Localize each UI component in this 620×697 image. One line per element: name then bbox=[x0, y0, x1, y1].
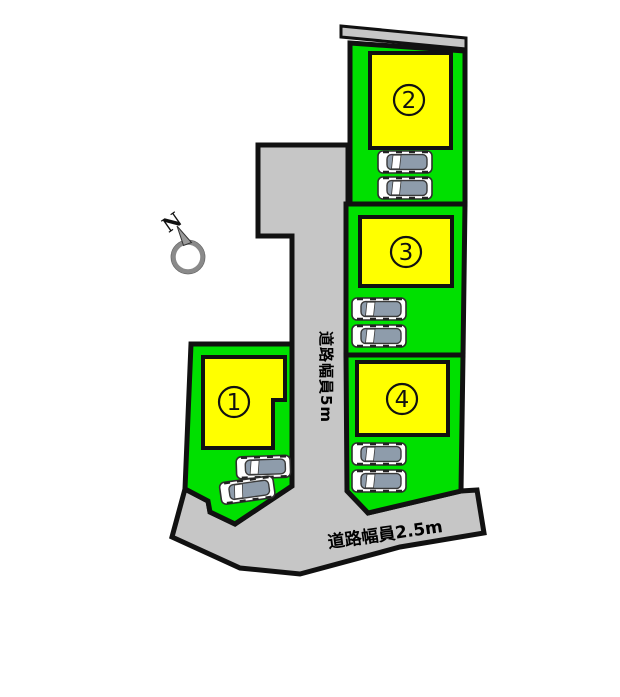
plot-label-3-text: 3 bbox=[399, 240, 414, 266]
car-icon bbox=[352, 443, 406, 465]
car-icon bbox=[236, 455, 291, 479]
car-icon bbox=[352, 470, 406, 492]
plot-label-4-text: 4 bbox=[395, 387, 410, 413]
car-icon bbox=[378, 177, 432, 199]
road-width-5m-label: 道路幅員5m bbox=[317, 331, 335, 423]
car-icon bbox=[378, 151, 432, 173]
car-icon bbox=[352, 325, 406, 347]
compass-icon: N bbox=[158, 207, 205, 274]
plot-label-1-text: 1 bbox=[227, 390, 242, 416]
site-plan-svg: 2 3 4 1 N 道路幅員5m 道路幅員2.5m bbox=[0, 0, 620, 697]
building-1 bbox=[203, 357, 285, 448]
site-plan: 2 3 4 1 N 道路幅員5m 道路幅員2.5m bbox=[0, 0, 620, 697]
car-icon bbox=[352, 298, 406, 320]
plot-label-2-text: 2 bbox=[402, 88, 417, 114]
